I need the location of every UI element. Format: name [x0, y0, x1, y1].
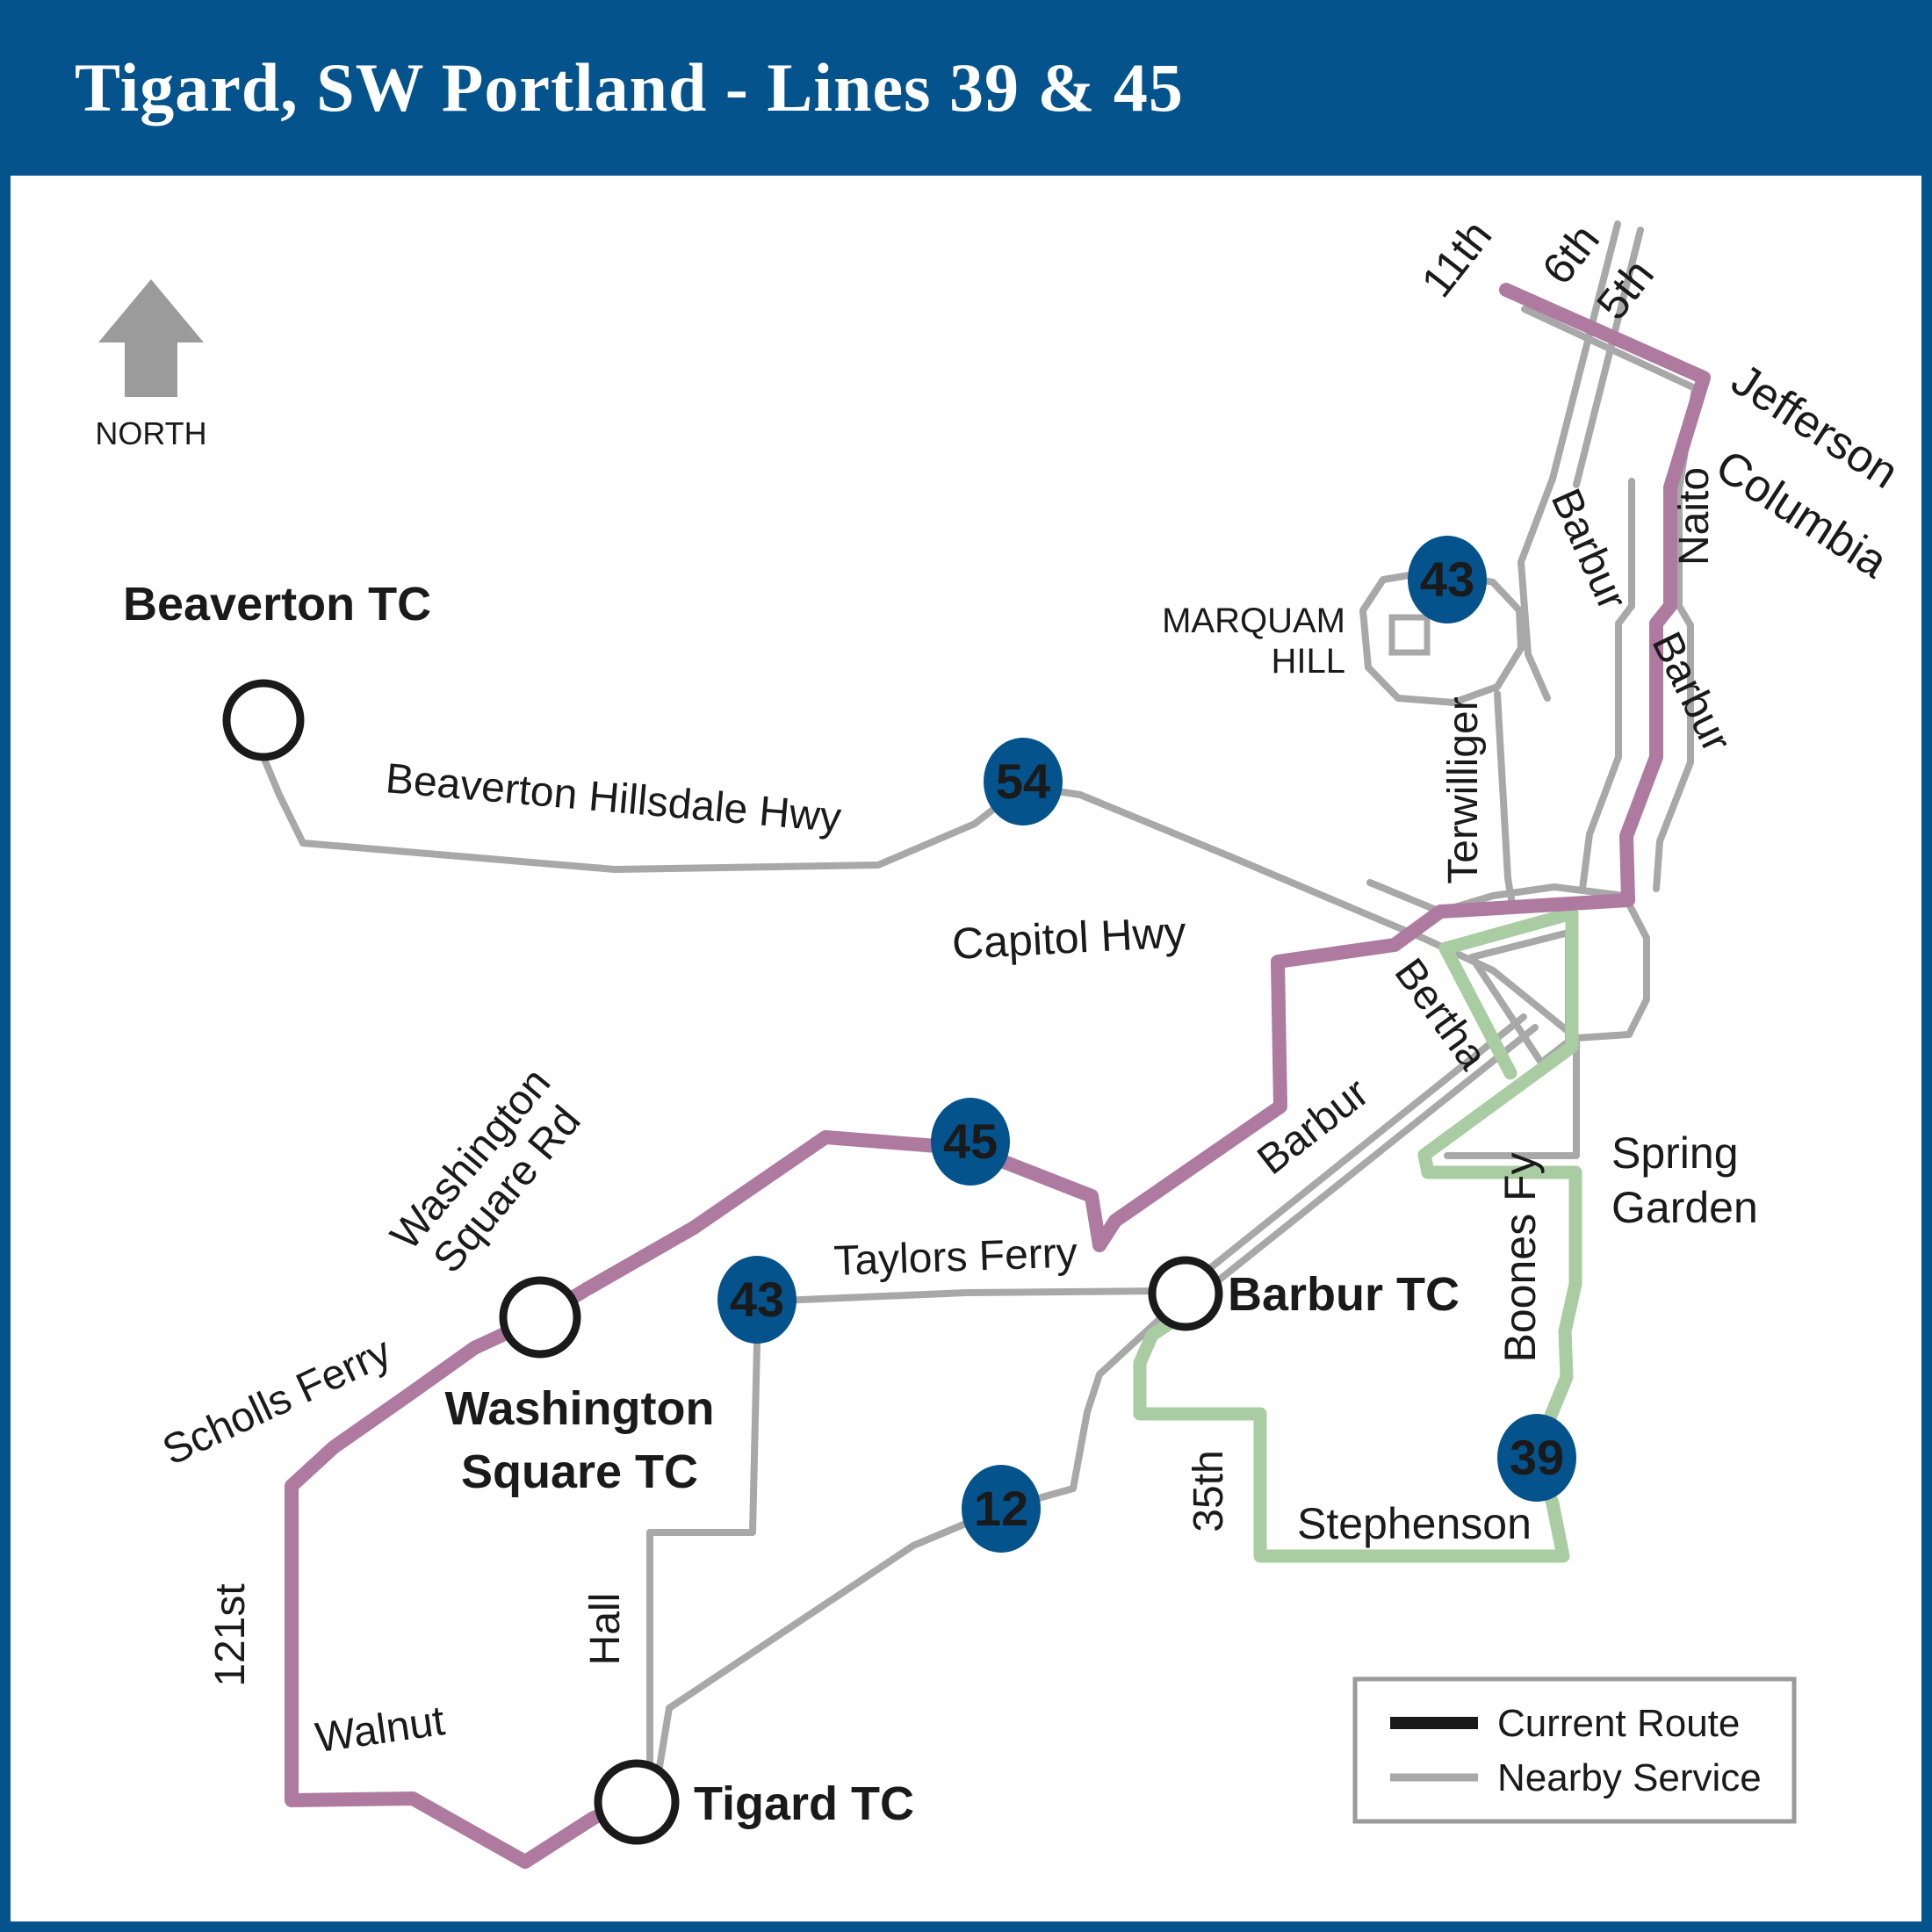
label-11th: 11th	[1412, 211, 1502, 306]
badge-line-43-marquam-label: 43	[1420, 551, 1474, 607]
label-walnut: Walnut	[313, 1698, 448, 1762]
label-35th: 35th	[1186, 1450, 1232, 1532]
badge-line-45-label: 45	[943, 1114, 998, 1169]
legend-label-nearby-service: Nearby Service	[1497, 1756, 1762, 1799]
label-washington-square-tc: WashingtonSquare TC	[445, 1382, 715, 1498]
station-washington-square-tc	[503, 1280, 577, 1354]
north-arrow-icon	[98, 279, 204, 397]
badge-line-54-label: 54	[996, 753, 1050, 809]
station-barbur-tc	[1152, 1260, 1219, 1327]
label-barbur-upper: Barbur	[1542, 482, 1636, 616]
route-junction-outer-loop	[1370, 883, 1647, 1156]
label-taylors-ferry: Taylors Ferry	[833, 1229, 1078, 1285]
label-beaverton-tc: Beaverton TC	[123, 578, 431, 631]
route-line12-pacific-hwy	[659, 1316, 1164, 1772]
map-page: Tigard, SW Portland - Lines 39 & 45 4354…	[0, 0, 1932, 1932]
badge-line-12-label: 12	[974, 1481, 1028, 1536]
label-terwilliger: Terwilliger	[1440, 696, 1487, 883]
marquam-hospital-icon	[1392, 617, 1427, 652]
route-line43-taylors-ferry	[760, 1291, 1159, 1301]
label-beaverton-hillsdale-hwy: Beaverton Hillsdale Hwy	[384, 755, 843, 841]
station-beaverton-tc	[227, 683, 300, 757]
map-title: Tigard, SW Portland - Lines 39 & 45	[75, 48, 1184, 127]
legend-box	[1355, 1679, 1794, 1821]
route-terwilliger	[1497, 694, 1512, 905]
title-bar: Tigard, SW Portland - Lines 39 & 45	[0, 0, 1932, 176]
label-boones-fy: Boones Fy	[1496, 1152, 1545, 1362]
badge-line-43-taylors-label: 43	[730, 1272, 784, 1327]
label-marquam-hill: MARQUAMHILL	[1162, 602, 1345, 681]
transit-map: 435445431239NORTHBeaverton TCBeaverton H…	[0, 0, 1932, 1932]
label-spring-garden: SpringGarden	[1611, 1128, 1758, 1232]
label-6th: 6th	[1532, 215, 1609, 293]
label-scholls-ferry: Scholls Ferry	[155, 1329, 398, 1474]
label-washington-square-rd: WashingtonSquare Rd	[382, 1060, 596, 1290]
label-5th: 5th	[1587, 250, 1663, 328]
label-north: NORTH	[95, 415, 206, 451]
label-barbur-tc: Barbur TC	[1228, 1268, 1460, 1321]
badge-line-39-label: 39	[1510, 1430, 1564, 1485]
legend-label-current-route: Current Route	[1497, 1702, 1740, 1745]
station-tigard-tc	[598, 1763, 675, 1841]
label-stephenson: Stephenson	[1297, 1499, 1532, 1548]
label-capitol-hwy: Capitol Hwy	[951, 907, 1187, 969]
route-line45-main	[292, 290, 1704, 1862]
label-hall: Hall	[582, 1593, 629, 1666]
label-121st: 121st	[207, 1583, 254, 1686]
label-tigard-tc: Tigard TC	[694, 1777, 914, 1830]
